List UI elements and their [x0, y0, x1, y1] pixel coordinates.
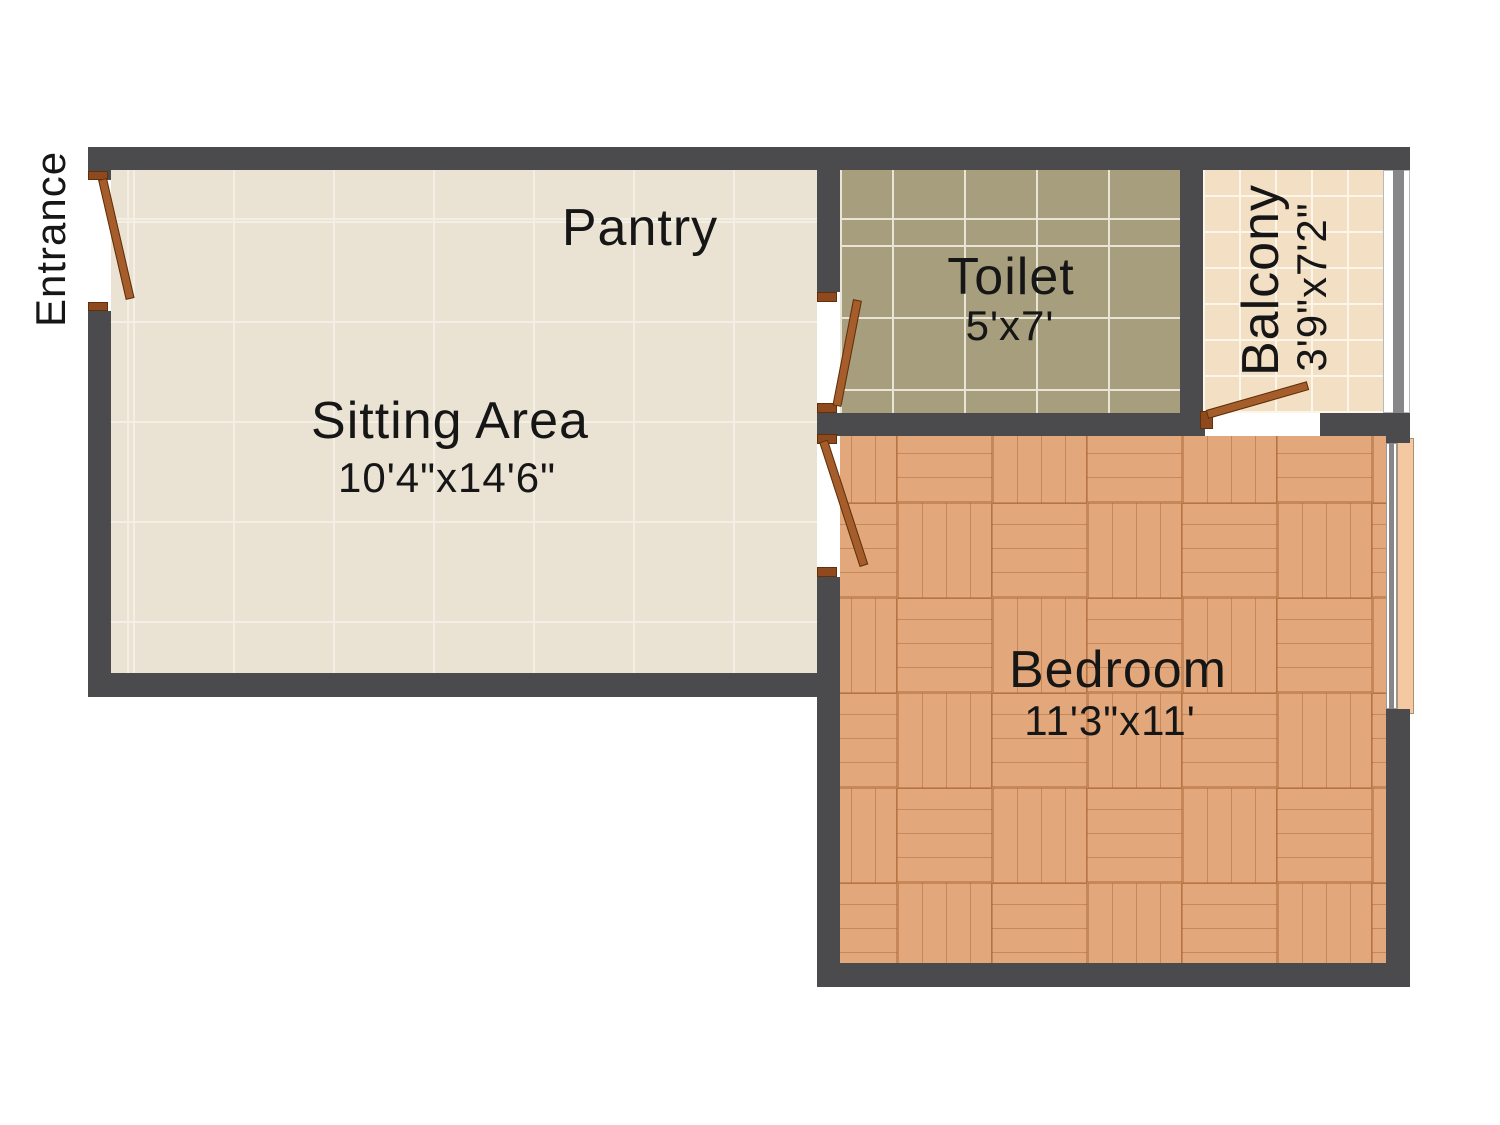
bedroom-right-wall-lower [1386, 709, 1410, 987]
parquet-tile [1372, 598, 1386, 693]
parquet-tile [1087, 436, 1182, 503]
entrance-label: Entrance [30, 151, 72, 327]
bedroom-dims: 11'3"x11' [1024, 700, 1196, 742]
pantry-label: Pantry [562, 202, 718, 254]
parquet-tile [1087, 503, 1182, 598]
bedroom-window-glass [1389, 443, 1394, 709]
divider-wall-lower [817, 577, 840, 987]
parquet-tile [992, 503, 1087, 598]
top-wall [88, 147, 1410, 170]
balcony-railing-bar [1393, 170, 1404, 413]
bedroom-bottom-wall [817, 963, 1410, 987]
balcony-dims: 3'9"x7'2" [1291, 202, 1333, 371]
parquet-tile [1277, 598, 1372, 693]
parquet-tile [897, 788, 992, 883]
parquet-tile [992, 883, 1087, 963]
parquet-tile [840, 598, 897, 693]
parquet-tile [1277, 693, 1372, 788]
parquet-tile [992, 788, 1087, 883]
bedroom-window-sill [1397, 438, 1414, 714]
parquet-tile [897, 598, 992, 693]
parquet-tile [1277, 883, 1372, 963]
bedroom-door-sill-bottom [817, 567, 837, 577]
parquet-tile [1087, 883, 1182, 963]
floor-plan: Entrance Pantry Sitting Area 10'4"x14'6"… [0, 0, 1500, 1125]
left-wall [88, 311, 111, 673]
parquet-tile [840, 693, 897, 788]
toilet-label: Toilet [947, 251, 1074, 303]
parquet-tile [1277, 788, 1372, 883]
parquet-tile [1277, 436, 1372, 503]
toilet-bottom-wall [817, 413, 1205, 436]
parquet-tile [840, 883, 897, 963]
parquet-tile [1372, 788, 1386, 883]
parquet-tile [1182, 503, 1277, 598]
parquet-tile [1372, 436, 1386, 503]
parquet-tile [897, 693, 992, 788]
balcony-label: Balcony [1235, 184, 1287, 376]
bedroom-right-wall-upper [1386, 413, 1410, 443]
parquet-tile [1087, 788, 1182, 883]
sitting-area-label: Sitting Area [311, 395, 589, 447]
parquet-tile [1182, 693, 1277, 788]
parquet-tile [1277, 503, 1372, 598]
parquet-tile [992, 436, 1087, 503]
parquet-tile [840, 436, 897, 503]
parquet-tile [1372, 503, 1386, 598]
parquet-tile [1182, 883, 1277, 963]
parquet-tile [1372, 693, 1386, 788]
balcony-left-wall [1180, 170, 1203, 413]
parquet-tile [840, 788, 897, 883]
parquet-tile [897, 503, 992, 598]
bedroom-label: Bedroom [1009, 644, 1227, 696]
sitting-area-dims: 10'4"x14'6" [338, 457, 556, 499]
sitting-bottom-wall [88, 673, 840, 697]
toilet-dims: 5'x7' [966, 305, 1055, 347]
parquet-tile [1182, 788, 1277, 883]
divider-wall-upper [817, 170, 840, 292]
entrance-door-sill-bottom [88, 302, 108, 311]
parquet-tile [1182, 436, 1277, 503]
parquet-tile [1372, 883, 1386, 963]
parquet-tile [897, 883, 992, 963]
toilet-door-sill-top [817, 292, 837, 302]
parquet-tile [897, 436, 992, 503]
